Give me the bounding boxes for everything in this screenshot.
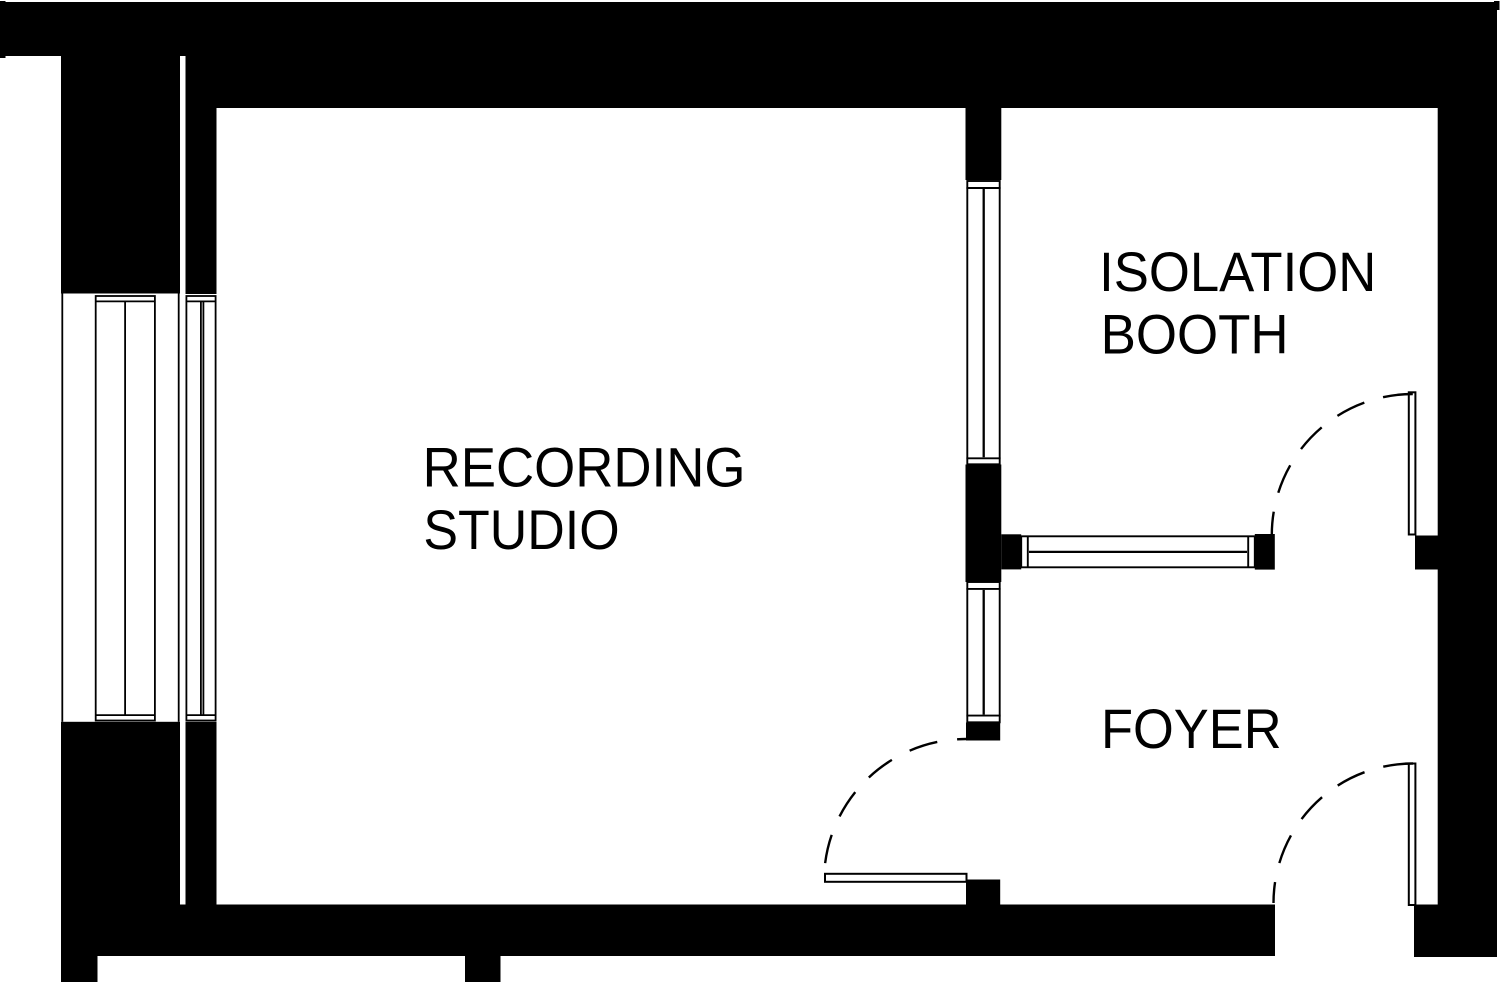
svg-text:FOYER: FOYER: [1101, 698, 1282, 760]
svg-text:STUDIO: STUDIO: [423, 499, 619, 561]
svg-text:BOOTH: BOOTH: [1101, 303, 1289, 365]
svg-text:RECORDING: RECORDING: [423, 436, 746, 498]
svg-text:ISOLATION: ISOLATION: [1099, 241, 1376, 303]
